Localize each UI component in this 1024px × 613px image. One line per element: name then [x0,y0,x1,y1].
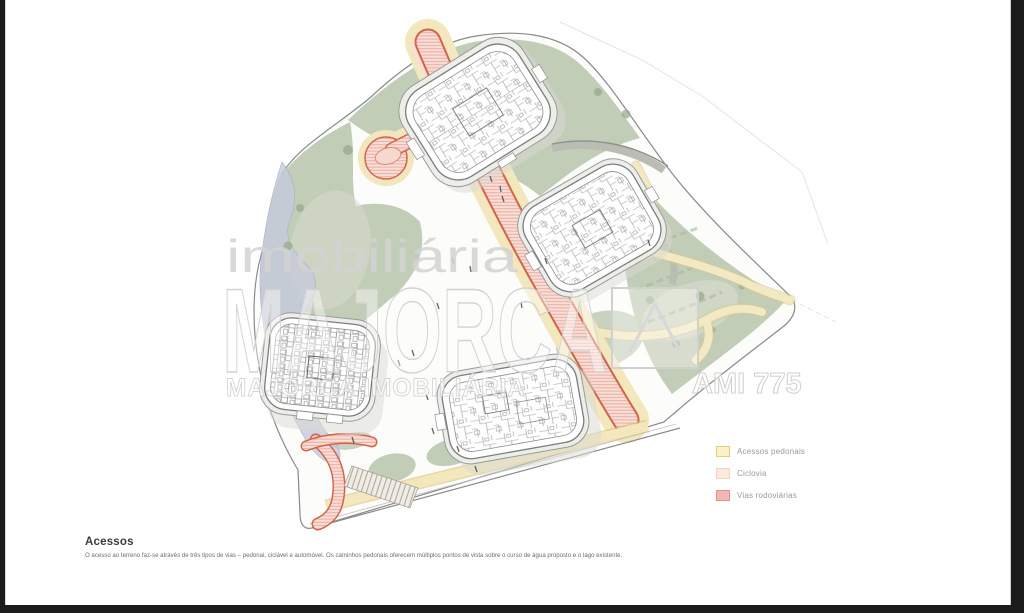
frame-bar-left [0,0,6,613]
legend-label: Acessos pedonais [737,447,805,456]
site-boundary [254,33,795,528]
building-1 [382,23,578,209]
frame-bar-right [1010,0,1024,613]
legend-item-pedestrian: Acessos pedonais [716,444,805,458]
watermark-brand-main: MAJORCA [222,264,607,398]
pedestrian-paths [598,166,790,360]
road-swatch-icon [716,490,730,501]
legend-label: Vias rodoviárias [737,491,797,500]
main-road [414,42,626,424]
watermark-overlay: imobiliária MAJORCA MAJORCA IMOBILIÁRIA … [0,0,1024,613]
retaining-walls [552,141,674,284]
cul-de-sac [358,122,452,186]
green-areas [260,39,786,487]
watermark-logo-square [612,288,698,368]
legend-label: Ciclovia [737,469,767,478]
legend-item-road: Vias rodoviárias [716,488,805,502]
pedestrian-swatch-icon [716,446,730,457]
stairs [344,466,418,508]
building-4 [428,348,605,481]
presentation-page: imobiliária MAJORCA MAJORCA IMOBILIÁRIA … [0,0,1024,613]
page-description: O acesso ao terreno faz-se através de tr… [85,552,410,559]
site-plan-drawing [0,0,1024,613]
watermark-tagline: MAJORCA IMOBILIÁRIA [226,373,526,402]
lake [260,162,340,463]
legend-item-cycleway: Ciclovia [716,466,805,480]
building-3 [256,310,392,437]
cycleway-swatch-icon [716,468,730,479]
frame-bar-bottom [0,605,1024,613]
watermark-brand-top: imobiliária [226,230,519,282]
legend: Acessos pedonais Ciclovia Vias rodoviári… [716,444,805,510]
trees [284,88,746,348]
watermark-license: AMI 775 [692,368,802,400]
caption-block: Acessos O acesso ao terreno faz-se atrav… [85,536,645,564]
building-2 [503,146,686,318]
people-figures [352,176,650,472]
context-lines [560,22,836,322]
bottom-boundary [310,424,680,528]
page-title: Acessos [85,536,645,548]
access-road-southwest [306,439,372,524]
